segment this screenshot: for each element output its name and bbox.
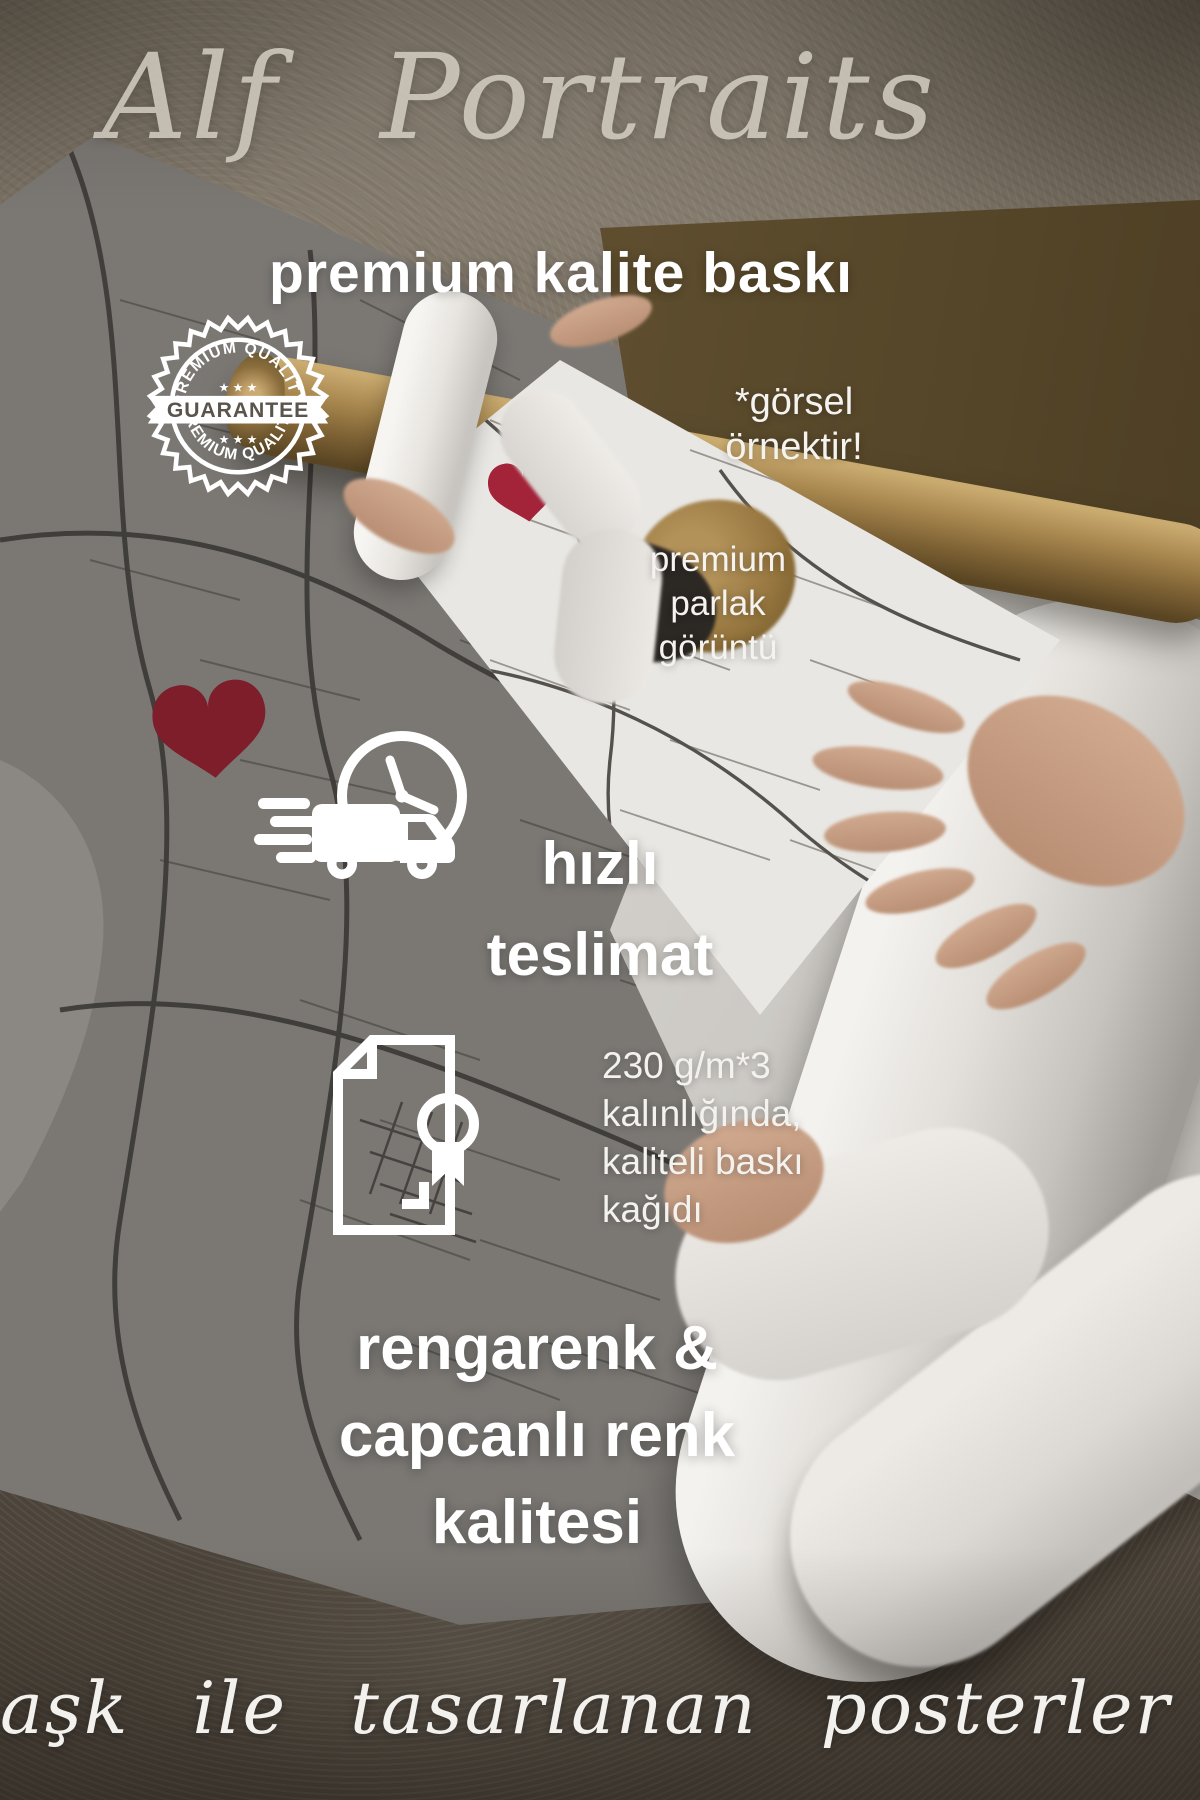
paper-spec-line4: kağıdı	[602, 1186, 932, 1234]
paper-spec-label: 230 g/m*3 kalınlığında, kaliteli baskı k…	[602, 1042, 932, 1234]
map-water-area	[0, 760, 103, 1212]
premium-quality-guarantee-stamp-icon: PREMIUM QUALITY PREMIUM QUALITY ★ ★ ★ GU…	[146, 314, 330, 498]
color-quality-line2: capcanlı renk	[0, 1393, 1074, 1480]
color-quality-line1: rengarenk &	[0, 1306, 1074, 1393]
fast-delivery-line2: teslimat	[400, 909, 800, 1000]
headline: premium kalite baskı	[0, 240, 1122, 306]
sample-note-line2: örnektir!	[680, 425, 908, 470]
stamp-banner-text: GUARANTEE	[167, 399, 309, 422]
paper-spec-line3: kaliteli baskı	[602, 1138, 932, 1186]
paper-outline	[338, 1040, 450, 1230]
stamp-stars-bottom: ★ ★ ★	[219, 433, 258, 447]
sample-image-note: *görsel örnektir!	[680, 380, 908, 470]
color-quality-label: rengarenk & capcanlı renk kalitesi	[0, 1306, 1074, 1566]
fast-delivery-label: hızlı teslimat	[400, 818, 800, 1000]
gloss-note-line1: premium	[604, 538, 832, 582]
clock-hands	[390, 760, 434, 810]
truck-body	[312, 804, 400, 862]
product-promo-image: Alf Portraits premium kalite baskı PREMI…	[0, 0, 1200, 1800]
clock-center-dot	[396, 790, 409, 803]
gloss-finish-note: premium parlak görüntü	[604, 538, 832, 670]
print-paper-award-icon	[320, 1030, 480, 1242]
brand-script-title: Alf Portraits	[0, 28, 1040, 166]
sample-note-line1: *görsel	[680, 380, 908, 425]
gloss-note-line3: görüntü	[604, 626, 832, 670]
fast-delivery-line1: hızlı	[400, 818, 800, 909]
color-quality-line3: kalitesi	[0, 1480, 1074, 1567]
footer-script-tagline: aşk ile tasarlanan posterler	[0, 1666, 1060, 1750]
paper-spec-line2: kalınlığında,	[602, 1090, 932, 1138]
truck-wheel-rear	[327, 849, 357, 879]
gloss-note-line2: parlak	[604, 582, 832, 626]
stamp-stars-top: ★ ★ ★	[219, 380, 258, 394]
paper-spec-line1: 230 g/m*3	[602, 1042, 932, 1090]
